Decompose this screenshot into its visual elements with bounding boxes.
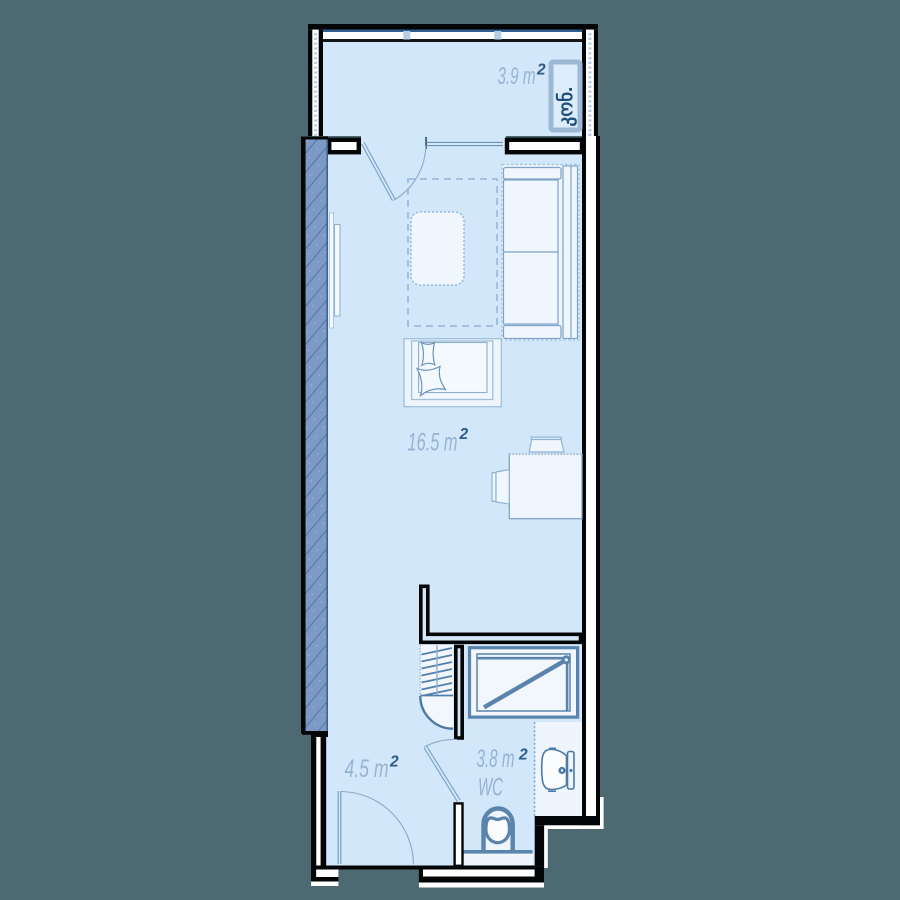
svg-text:WC: WC xyxy=(478,774,504,802)
svg-text:4.5 m: 4.5 m xyxy=(345,755,389,783)
svg-text:2: 2 xyxy=(459,426,469,443)
svg-text:16.5 m: 16.5 m xyxy=(408,429,458,457)
svg-text:2: 2 xyxy=(518,747,528,764)
svg-text:2: 2 xyxy=(389,754,399,771)
svg-text:3.8 m: 3.8 m xyxy=(477,745,515,773)
svg-text:2: 2 xyxy=(536,62,546,79)
svg-text:3.9 m: 3.9 m xyxy=(498,63,536,90)
svg-text:კონ.: კონ. xyxy=(555,87,577,127)
